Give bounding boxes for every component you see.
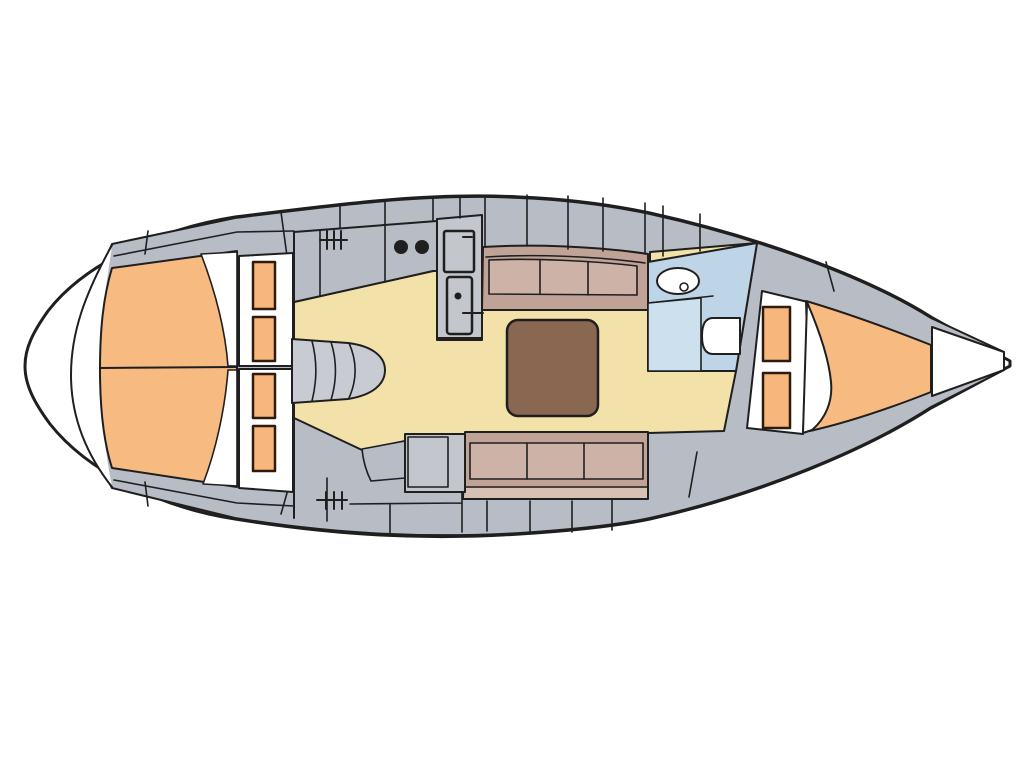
- aft-shelf-cushion-2: [253, 317, 275, 361]
- head-sink-drain-icon: [680, 283, 688, 291]
- yacht-floor-plan: [0, 0, 1024, 768]
- settee-starboard-cushions: [489, 259, 637, 295]
- saloon-table: [507, 320, 598, 416]
- galley-sink: [447, 277, 472, 334]
- head-floor: [648, 298, 701, 371]
- nav-seat: [362, 441, 405, 481]
- chart-table: [405, 434, 465, 492]
- aft-shelf-cushion-4: [253, 426, 275, 471]
- fore-shelf-cushion-1: [763, 307, 790, 361]
- fore-shelf-cushion-2: [763, 373, 790, 428]
- stove-burner-left-icon: [394, 240, 408, 254]
- aft-berth-centerline: [100, 367, 237, 368]
- stove-burner-right-icon: [415, 240, 429, 254]
- aft-shelf-cushion-3: [253, 374, 275, 418]
- aft-shelf-cushion-1: [253, 262, 275, 309]
- toilet-icon: [702, 318, 740, 354]
- settee-port-cushions: [470, 443, 643, 479]
- head-sink-icon: [657, 268, 699, 294]
- settee-port-front: [464, 488, 647, 498]
- sink-drain-icon: [455, 293, 462, 300]
